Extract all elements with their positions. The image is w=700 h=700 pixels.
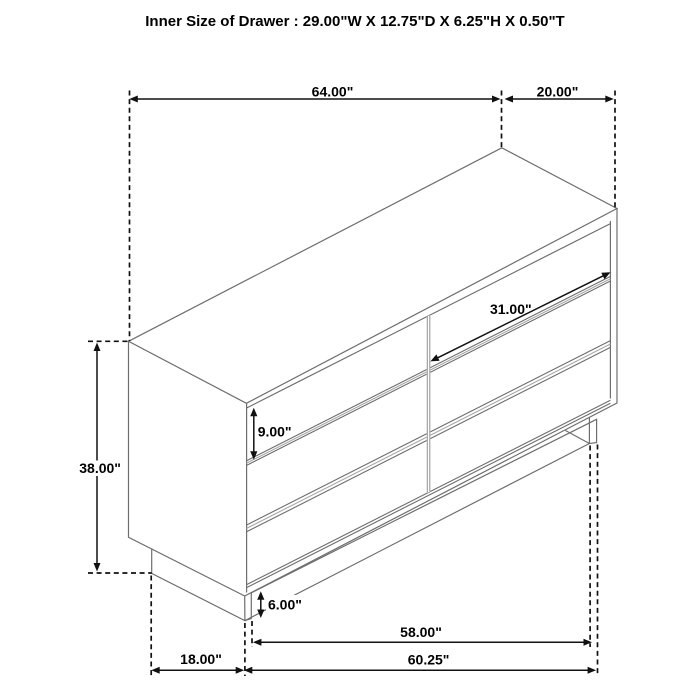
svg-text:58.00": 58.00" — [400, 624, 442, 640]
svg-text:6.00": 6.00" — [268, 596, 302, 612]
svg-text:38.00": 38.00" — [79, 460, 121, 476]
svg-text:18.00": 18.00" — [180, 651, 222, 667]
svg-text:9.00": 9.00" — [258, 423, 292, 439]
svg-text:Inner Size of Drawer : 29.00"W: Inner Size of Drawer : 29.00"W X 12.75"D… — [145, 13, 564, 30]
svg-text:64.00": 64.00" — [312, 83, 354, 99]
svg-text:60.25": 60.25" — [408, 652, 450, 668]
svg-text:31.00": 31.00" — [490, 301, 532, 317]
svg-text:20.00": 20.00" — [537, 83, 579, 99]
